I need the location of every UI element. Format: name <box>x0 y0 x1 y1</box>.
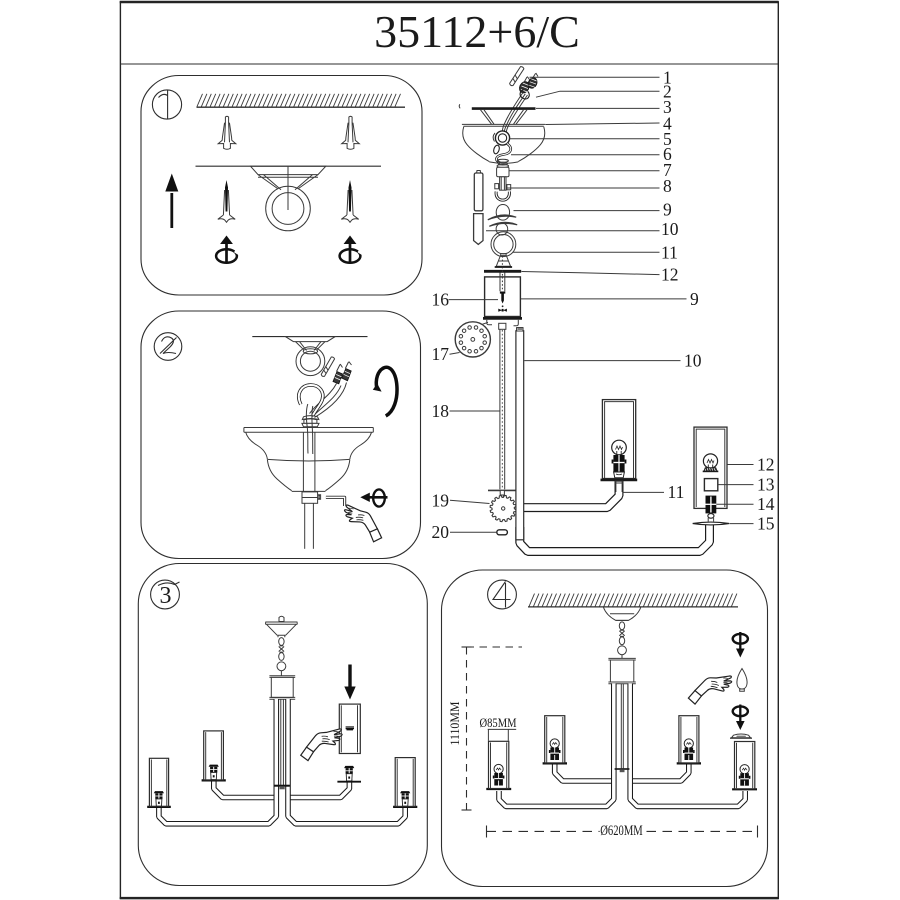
svg-text:Ø85MM: Ø85MM <box>480 716 517 730</box>
svg-text:Ø620MM: Ø620MM <box>600 823 643 839</box>
svg-text:19: 19 <box>432 490 450 510</box>
svg-text:16: 16 <box>432 289 450 309</box>
svg-text:35112+6/C: 35112+6/C <box>374 6 580 57</box>
svg-text:20: 20 <box>432 522 450 542</box>
svg-text:10: 10 <box>661 219 679 239</box>
svg-text:3: 3 <box>160 583 172 609</box>
svg-text:11: 11 <box>661 243 678 263</box>
svg-text:15: 15 <box>757 513 775 533</box>
svg-text:13: 13 <box>757 474 775 494</box>
svg-text:14: 14 <box>757 494 775 514</box>
svg-text:18: 18 <box>432 401 450 421</box>
svg-text:8: 8 <box>663 176 672 196</box>
svg-text:9: 9 <box>690 289 699 309</box>
svg-text:11: 11 <box>668 482 685 502</box>
svg-text:17: 17 <box>432 344 450 364</box>
svg-text:9: 9 <box>663 200 672 220</box>
svg-text:10: 10 <box>684 350 702 370</box>
svg-text:12: 12 <box>757 454 775 474</box>
svg-text:1110MM: 1110MM <box>448 702 462 746</box>
svg-text:12: 12 <box>661 265 679 285</box>
